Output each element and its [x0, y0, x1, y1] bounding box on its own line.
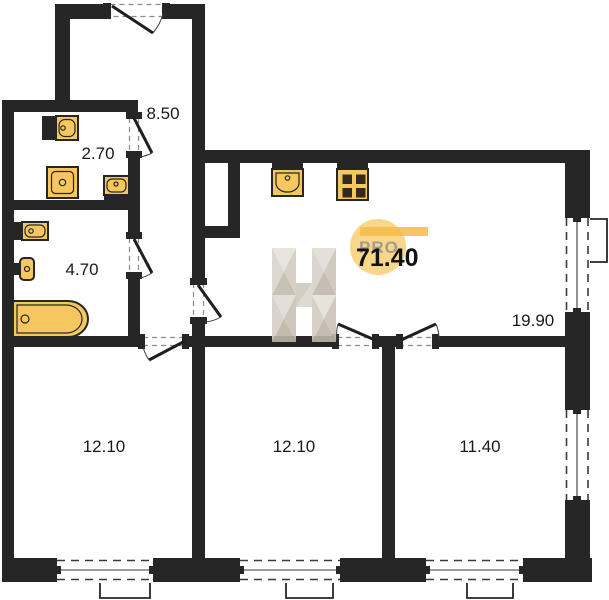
- door-living-bedroom-right: [396, 324, 439, 349]
- door-living-bedroom-middle: [332, 324, 379, 349]
- total-area-value: 71.40: [356, 244, 419, 272]
- logo-bar: [360, 227, 428, 236]
- stove: [337, 162, 368, 200]
- shower-tray: [47, 167, 78, 198]
- window-bottom-middle: [236, 561, 344, 599]
- door-hall-living: [190, 278, 221, 324]
- floor-plan-svg: PRO 71.40 8.50 2.70 4.70 19.90 12.10 12.…: [0, 0, 609, 600]
- entry-door: [103, 3, 170, 33]
- label-bedroom-right-area: 11.40: [459, 437, 500, 456]
- sink-corner: [104, 176, 129, 200]
- bathtub: [13, 301, 88, 337]
- window-sill: [286, 583, 333, 598]
- window-right-lower: [567, 406, 589, 504]
- wall-hall-right-upper: [192, 4, 205, 283]
- wall-living-top: [205, 150, 565, 163]
- wall-rooms23-divider: [382, 347, 395, 582]
- window-bottom-right: [422, 561, 527, 599]
- wall-bath-hall-c: [128, 278, 140, 336]
- label-hallway-area: 8.50: [146, 104, 179, 123]
- door-bathroom-large: [126, 232, 152, 279]
- label-bathroom-small-area: 2.70: [81, 144, 114, 163]
- wall-bath-hall-b: [128, 157, 140, 238]
- wall-rooms12-divider: [192, 347, 205, 582]
- wall-right-mid: [565, 312, 590, 410]
- kitchen-sink: [272, 162, 303, 196]
- label-bathroom-large-area: 4.70: [65, 260, 98, 279]
- wall-bath-divider: [14, 200, 138, 210]
- label-living-area: 19.90: [512, 311, 555, 330]
- label-bedroom-left-area: 12.10: [83, 437, 126, 456]
- wall-bottom-b: [153, 558, 240, 582]
- total-area-badge: PRO 71.40: [350, 219, 428, 275]
- watermark-h-logo: [272, 248, 336, 342]
- floor-plan-page: PRO 71.40 8.50 2.70 4.70 19.90 12.10 12.…: [0, 0, 609, 600]
- window-bottom-left: [53, 561, 157, 599]
- wall-bottom-d: [523, 558, 592, 582]
- sink-bathroom-small: [42, 116, 78, 140]
- wall-right-top: [565, 150, 590, 218]
- window-ledge: [590, 219, 607, 262]
- wall-main-divider-c: [377, 336, 399, 347]
- wall-bottom-a: [2, 558, 57, 582]
- wall-duct-horizontal: [205, 226, 240, 238]
- wall-main-divider-d: [437, 336, 570, 347]
- window-sill: [467, 583, 513, 598]
- window-sill: [100, 583, 150, 598]
- window-right-upper: [567, 214, 608, 316]
- wall-entry-left: [55, 4, 70, 112]
- wall-bath-top: [2, 100, 138, 112]
- sink-bathroom-large: [14, 222, 48, 240]
- wall-bottom-c: [340, 558, 426, 582]
- label-bedroom-middle-area: 12.10: [273, 437, 316, 456]
- toilet: [14, 258, 34, 280]
- door-hall-bedroom-left: [138, 334, 189, 360]
